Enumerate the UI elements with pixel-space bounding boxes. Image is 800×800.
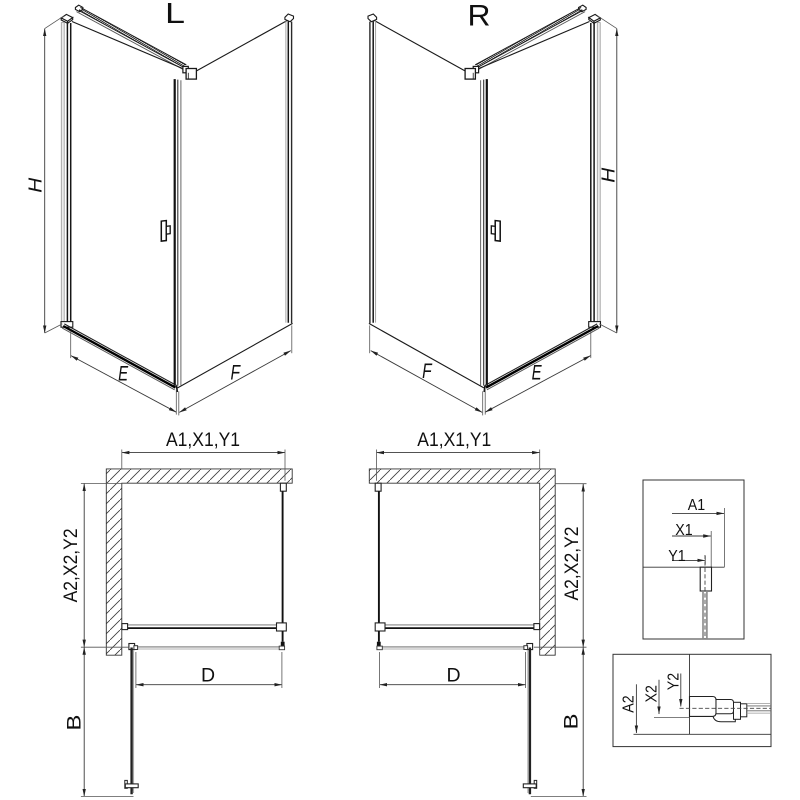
svg-text:Y1: Y1 bbox=[668, 548, 685, 565]
svg-text:H: H bbox=[598, 167, 619, 183]
svg-text:A1,X1,Y1: A1,X1,Y1 bbox=[166, 429, 240, 451]
svg-text:B: B bbox=[64, 715, 86, 731]
svg-text:A1,X1,Y1: A1,X1,Y1 bbox=[417, 429, 491, 451]
svg-text:H: H bbox=[25, 177, 46, 193]
svg-text:L: L bbox=[165, 0, 185, 30]
svg-text:B: B bbox=[561, 714, 583, 730]
svg-text:X2: X2 bbox=[643, 685, 660, 702]
svg-text:X1: X1 bbox=[675, 522, 692, 539]
svg-text:A1: A1 bbox=[688, 497, 705, 514]
svg-text:D: D bbox=[201, 665, 215, 687]
svg-text:D: D bbox=[446, 665, 460, 687]
svg-text:E: E bbox=[118, 362, 128, 386]
svg-text:R: R bbox=[468, 0, 491, 33]
svg-text:F: F bbox=[422, 359, 433, 383]
svg-text:E: E bbox=[532, 360, 542, 384]
svg-text:A2,X2,Y2: A2,X2,Y2 bbox=[561, 527, 583, 601]
svg-text:F: F bbox=[231, 360, 242, 384]
svg-text:Y2: Y2 bbox=[665, 673, 682, 690]
svg-text:A2: A2 bbox=[621, 695, 638, 712]
svg-text:A2,X2,Y2: A2,X2,Y2 bbox=[60, 528, 82, 602]
